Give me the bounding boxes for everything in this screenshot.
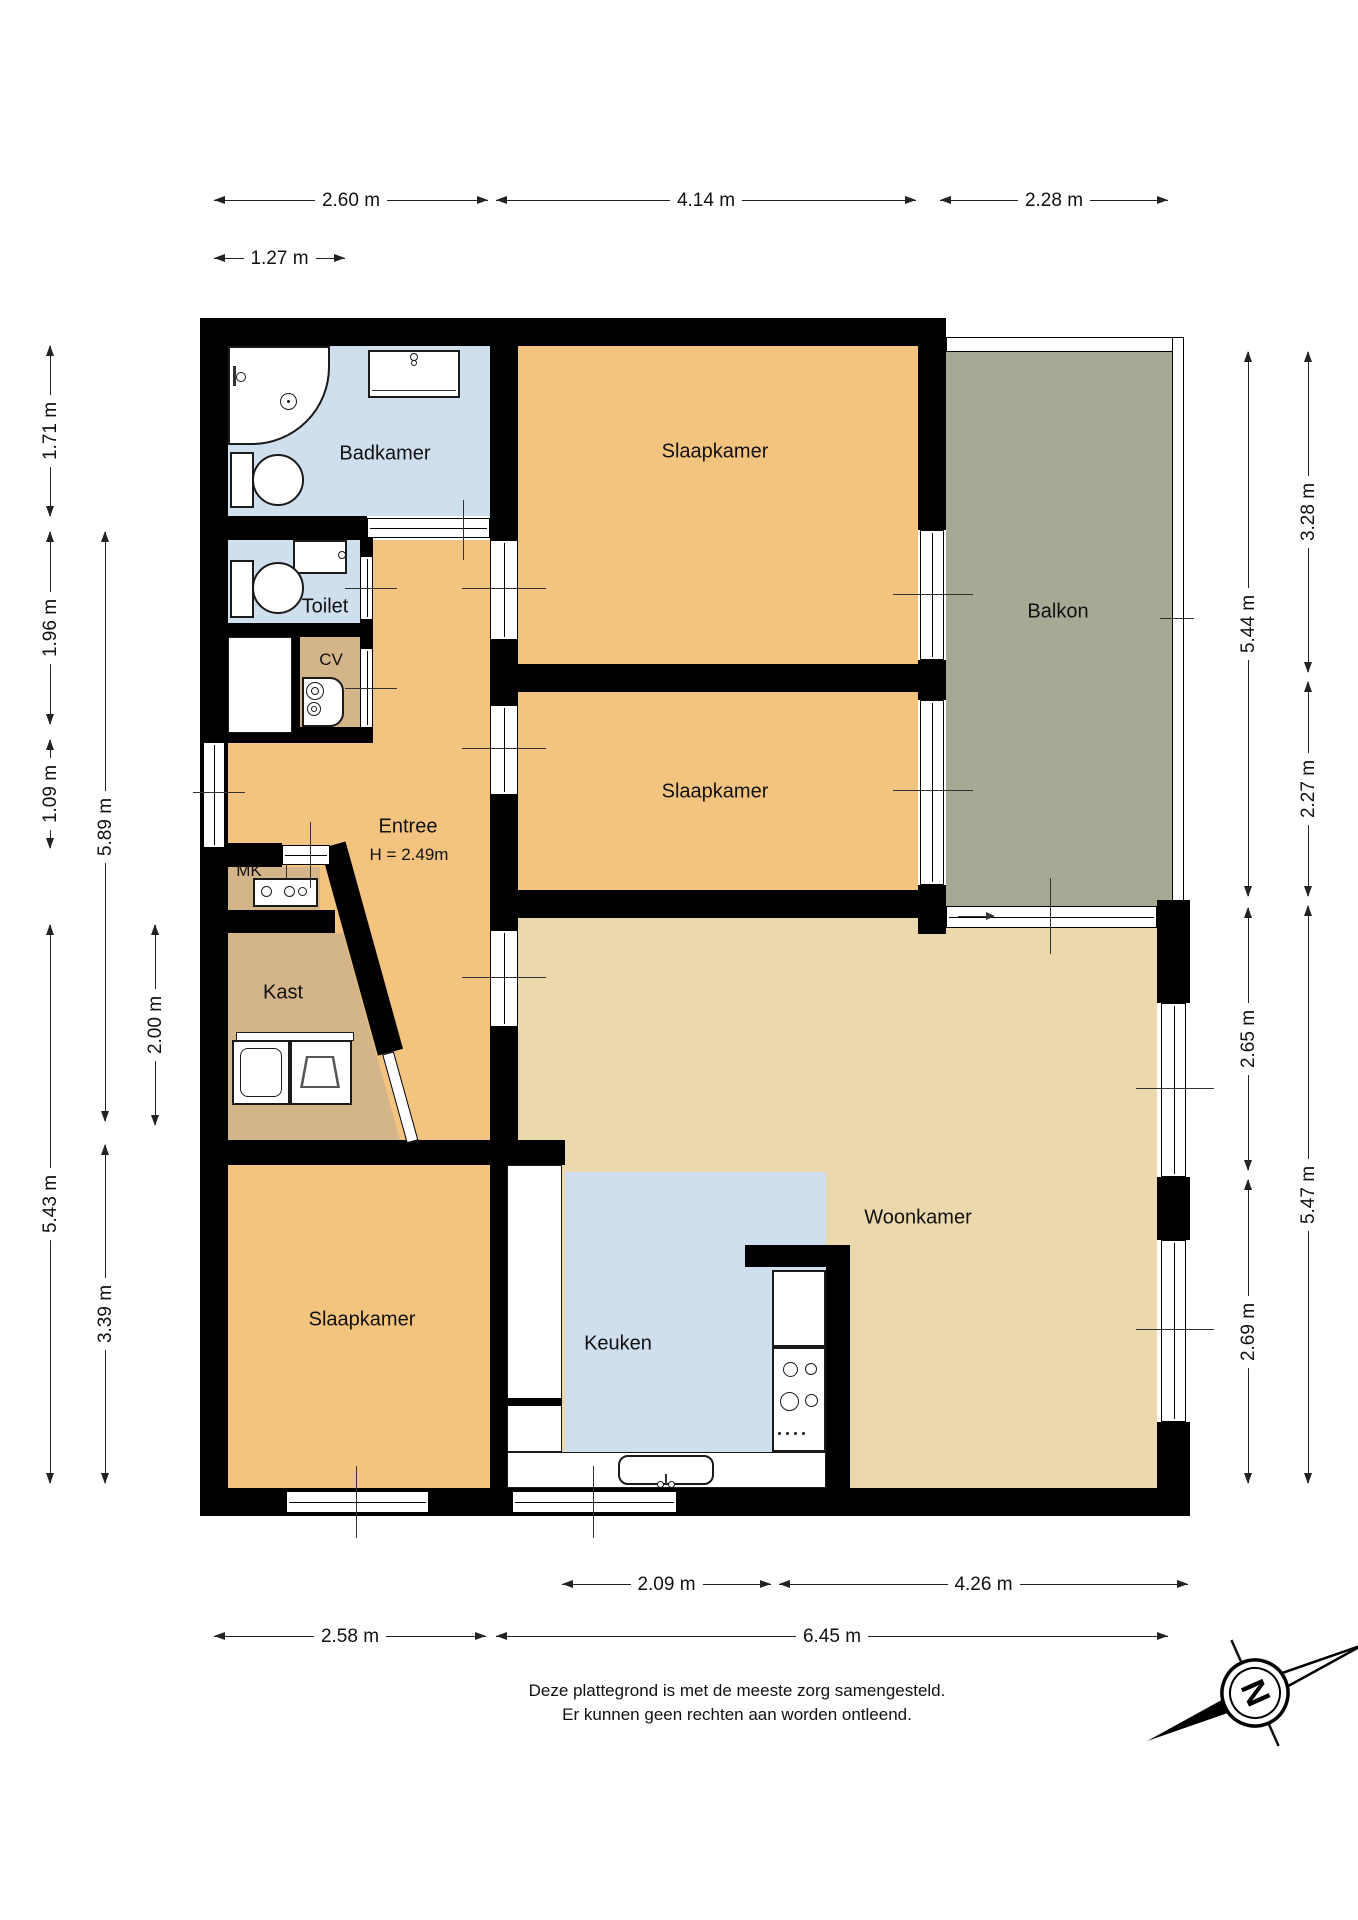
window-slaapkamer3-bottom [286, 1491, 429, 1513]
wall-balkon-b [918, 660, 946, 700]
slider-arrow-head [986, 912, 995, 920]
tick-woonkamer-door [462, 977, 546, 978]
wall-mk-bottom [200, 910, 335, 933]
sink-tap-stem [665, 1474, 667, 1485]
tick-mk-door [310, 822, 311, 888]
door-badkamer [367, 518, 490, 538]
stove-dot-4 [802, 1432, 805, 1435]
label-mk: MK [236, 861, 262, 881]
dim-bottom-2-58: 2.58 m [214, 1636, 486, 1637]
wall-keuken-right [826, 1245, 850, 1488]
compass-rose: N [1120, 1612, 1358, 1777]
door-woonkamer [490, 930, 518, 1027]
dim-left-1-09: 1.09 m [50, 740, 51, 848]
room-balkon-floor [946, 352, 1172, 906]
dim-bottom-6-45: 6.45 m [496, 1636, 1168, 1637]
built-in-closet [228, 637, 292, 733]
window-slaapkamer2-balkon [920, 700, 944, 885]
dim-right-2-65: 2.65 m [1248, 908, 1249, 1170]
cv-boiler-dial-2b [311, 706, 317, 712]
mk-meter-dial-3 [298, 887, 307, 896]
tick-right-window-2 [1136, 1329, 1214, 1330]
kitchen-counter-column [507, 1165, 562, 1452]
label-keuken: Keuken [584, 1333, 652, 1356]
stove-dot-3 [794, 1432, 797, 1435]
burner-3 [780, 1392, 799, 1411]
wall-kast-bottom [200, 1140, 565, 1165]
tick-slaap2-window [893, 790, 973, 791]
sink-tap-left [657, 1481, 664, 1488]
toilet-badkamer-bowl [252, 454, 304, 506]
burner-1 [783, 1362, 798, 1377]
tick-toilet-door [345, 588, 397, 589]
window-woonkamer-right-1 [1161, 1003, 1186, 1177]
label-slaapkamer-1: Slaapkamer [662, 441, 769, 464]
stove-dot-2 [786, 1432, 789, 1435]
dim-left-5-43: 5.43 m [50, 925, 51, 1483]
stove-dot-1 [778, 1432, 781, 1435]
dim-left-3-39: 3.39 m [105, 1145, 106, 1483]
window-keuken-bottom [512, 1491, 677, 1513]
label-entree: Entree [379, 816, 438, 839]
wall-closet-cv-divider [292, 637, 300, 733]
label-balkon: Balkon [1027, 601, 1088, 624]
toilet-wc-bowl [252, 562, 304, 614]
dim-left-1-96: 1.96 m [50, 532, 51, 724]
footer-disclaimer-line1: Deze plattegrond is met de meeste zorg s… [529, 1681, 946, 1701]
toilet-wc-tank [230, 560, 254, 618]
shower-head-knob [236, 372, 246, 382]
tick-slaapkamer2-door [462, 748, 546, 749]
label-slaapkamer-2: Slaapkamer [662, 781, 769, 804]
balcony-railing-top [946, 337, 1184, 352]
footer-disclaimer-line2: Er kunnen geen rechten aan worden ontlee… [562, 1705, 912, 1725]
burner-2 [805, 1363, 817, 1375]
sink-tap-right [668, 1481, 675, 1488]
wall-slaapkamer3-right [490, 1165, 507, 1488]
window-entree-left [203, 742, 225, 848]
mk-meter-dial-1 [261, 886, 272, 897]
wall-slaapkamer-divider [518, 664, 918, 692]
dim-right-2-27: 2.27 m [1308, 682, 1309, 896]
fontein-tap-icon [338, 551, 346, 559]
wall-badkamer-bottom [200, 516, 367, 540]
wall-right-bottom [1157, 1422, 1190, 1516]
washbasin-edge-line [372, 390, 456, 391]
dim-top-1-27: 1.27 m [214, 258, 345, 259]
dim-right-5-47: 5.47 m [1308, 906, 1309, 1483]
floorplan-canvas: Badkamer Toilet CV MK Entree H = 2.49m K… [0, 0, 1358, 1920]
washbasin-tap-icon2 [411, 360, 417, 366]
wall-right-top-block [1157, 900, 1190, 1003]
dim-right-2-69: 2.69 m [1248, 1180, 1249, 1483]
label-toilet: Toilet [302, 596, 349, 619]
tick-slider [1050, 878, 1051, 954]
mk-meter-dial-2 [284, 886, 295, 897]
dim-left-2-00: 2.00 m [155, 925, 156, 1125]
label-slaapkamer-3: Slaapkamer [309, 1309, 416, 1332]
door-slaapkamer1 [490, 540, 518, 640]
dim-left-5-89: 5.89 m [105, 532, 106, 1121]
cv-boiler-dial-1b [311, 687, 319, 695]
shower-drain-dot [287, 400, 290, 403]
dim-right-3-28: 3.28 m [1308, 352, 1309, 672]
dim-left-1-71: 1.71 m [50, 346, 51, 516]
tick-bottom-window-1 [356, 1466, 357, 1538]
burner-4 [805, 1394, 818, 1407]
wall-balkon-c [918, 885, 946, 934]
wall-slaapkamer2-bottom [490, 890, 946, 918]
slider-arrow-line [958, 916, 986, 917]
fridge [772, 1270, 826, 1347]
dim-bottom-2-09: 2.09 m [562, 1584, 771, 1585]
laundry-icon-inner [303, 1058, 337, 1086]
balcony-railing-right [1172, 337, 1184, 906]
dim-top-2-60: 2.60 m [214, 200, 488, 201]
toilet-badkamer-tank [230, 452, 254, 508]
wall-right-pier [1157, 1177, 1190, 1240]
tick-bottom-window-2 [593, 1466, 594, 1538]
tick-badkamer-door [463, 500, 464, 560]
tick-right-window-1 [1136, 1088, 1214, 1089]
tick-cv-door [345, 688, 397, 689]
dim-top-4-14: 4.14 m [496, 200, 916, 201]
wall-top-outer [200, 318, 946, 346]
door-slaapkamer2 [490, 705, 518, 795]
room-slaapkamer1-floor [518, 346, 918, 664]
label-badkamer: Badkamer [339, 443, 430, 466]
tick-slaapkamer1-door [462, 588, 546, 589]
kitchen-counter-cap [507, 1398, 562, 1406]
dim-right-5-44: 5.44 m [1248, 352, 1249, 896]
wall-toilet-bottom [200, 623, 373, 637]
label-entree-height: H = 2.49m [370, 845, 449, 865]
door-mk [282, 845, 330, 865]
dim-bottom-4-26: 4.26 m [779, 1584, 1188, 1585]
tick-slaap1-window [893, 594, 973, 595]
dim-top-2-28: 2.28 m [940, 200, 1168, 201]
washer-door [240, 1048, 282, 1097]
label-woonkamer: Woonkamer [864, 1207, 971, 1230]
tick-balkon-railing [1160, 618, 1194, 619]
window-woonkamer-right-2 [1161, 1240, 1186, 1422]
tick-entree-window [193, 792, 245, 793]
label-kast: Kast [263, 982, 303, 1005]
label-cv: CV [319, 650, 343, 670]
wall-balkon-a [918, 318, 946, 530]
